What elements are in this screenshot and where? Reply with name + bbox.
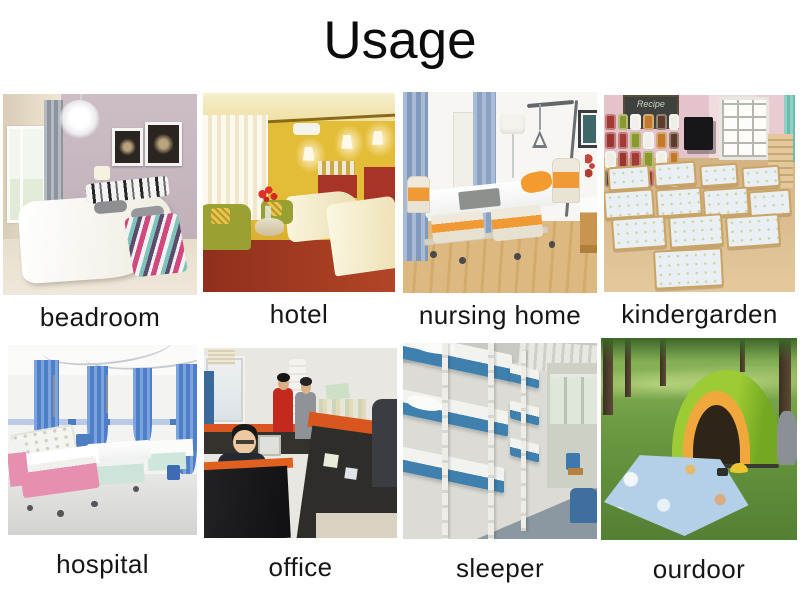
sofa-pillow (211, 208, 230, 224)
shelf-cube (643, 132, 654, 149)
usage-collage: Usage beadroom (0, 0, 800, 600)
seat-cushion (570, 488, 597, 523)
vase (265, 206, 271, 220)
usage-item-kindergarten: Recipe (604, 95, 795, 330)
caption-hotel: hotel (203, 299, 395, 330)
floor-lamp (500, 114, 525, 134)
usage-item-nursing-home: nursing home (403, 92, 597, 331)
outdoor-photo (601, 338, 797, 540)
monitor-back (204, 465, 291, 538)
page-title: Usage (0, 12, 800, 70)
shelf-cube (618, 114, 629, 131)
caption-hospital: hospital (8, 549, 197, 580)
twin-bed (325, 196, 395, 277)
person-dark (372, 399, 397, 486)
toddler-bed (655, 186, 703, 217)
shelf-cube (618, 132, 629, 149)
ladder (442, 343, 448, 539)
usage-item-bedroom: beadroom (3, 94, 197, 333)
bolster-pillow (94, 199, 128, 214)
bananas (730, 463, 748, 473)
caster-wheel (514, 253, 521, 260)
shelf-cube (605, 132, 616, 149)
person-hair (300, 377, 312, 386)
caption-office: office (204, 552, 397, 583)
caption-outdoor: ourdoor (601, 554, 797, 585)
shelf-cube (630, 132, 641, 149)
hotel-photo (203, 93, 395, 292)
chandelier (59, 100, 100, 140)
toddler-bed (653, 161, 697, 188)
toddler-bed (611, 215, 667, 250)
headboard (552, 158, 579, 202)
privacy-curtain (133, 368, 152, 444)
usage-item-hospital: hospital (8, 345, 197, 580)
shelf-cube (630, 114, 641, 131)
usage-item-sleeper: sleeper (403, 343, 597, 584)
usage-item-hotel: hotel (203, 93, 395, 330)
ladder (521, 351, 525, 531)
caption-kindergarten: kindergarden (604, 299, 795, 330)
toddler-bed (607, 164, 651, 191)
bedroom-photo (3, 94, 197, 295)
flower-decal (585, 154, 595, 178)
hospital-photo (8, 345, 197, 535)
shelf-cube (643, 114, 654, 131)
toddler-bed (653, 247, 724, 290)
table-lamp (94, 166, 110, 180)
window-blind (208, 348, 235, 365)
glasses (236, 440, 254, 444)
ladder (488, 343, 494, 539)
caster-wheel (91, 501, 97, 507)
usage-item-office: office (204, 348, 397, 583)
toddler-bed (748, 188, 792, 217)
picture-frame (578, 110, 597, 148)
hospital-bed-panel (92, 457, 145, 485)
shelf-cube (605, 151, 616, 168)
shelf-cube (656, 132, 667, 149)
nursing-home-photo (403, 92, 597, 293)
toddler-bed (702, 186, 750, 217)
blackboard-text: Recipe (625, 99, 677, 109)
caption-bedroom: beadroom (3, 302, 197, 333)
toddler-bed (604, 188, 655, 219)
monitor (258, 435, 281, 456)
striped-blanket (124, 212, 189, 277)
caption-sleeper: sleeper (403, 553, 597, 584)
document-box (325, 383, 350, 401)
camping-gear (777, 411, 797, 466)
toddler-bed (699, 163, 739, 187)
blue-stool (167, 465, 180, 480)
toddler-bed (725, 213, 781, 248)
window-mullion (20, 126, 23, 216)
usage-item-outdoor: ourdoor (601, 338, 797, 585)
sleeper-photo (403, 343, 597, 539)
red-flowers (255, 185, 280, 209)
person-hair (277, 373, 290, 383)
piano (684, 117, 713, 150)
tile-floor (316, 513, 397, 538)
picture-frame (145, 122, 182, 166)
footboard (407, 176, 430, 212)
shelf-cube (605, 114, 616, 131)
office-photo (204, 348, 397, 538)
sticky-note (323, 454, 338, 469)
bedside-cabinet (580, 197, 597, 253)
picture-frame (112, 128, 143, 166)
window (719, 97, 769, 160)
kindergarten-photo: Recipe (604, 95, 795, 292)
toddler-bed (668, 213, 724, 248)
corridor-window (550, 374, 597, 424)
shelf-cube (669, 114, 680, 131)
toddler-bed (741, 165, 781, 189)
side-table (568, 468, 584, 475)
caster-wheel (57, 510, 63, 516)
sticky-note (344, 467, 357, 480)
trapeze-arm (527, 100, 574, 108)
shelf-cube (656, 114, 667, 131)
shelf-cube (669, 132, 680, 149)
person-red-jacket (273, 388, 292, 432)
small-gear (717, 468, 729, 476)
glass-table (255, 218, 284, 236)
side-rail (431, 210, 486, 243)
tree-canopy-shadow (601, 338, 797, 362)
person-blue (204, 371, 214, 424)
iv-pole (106, 375, 108, 413)
lamp-pole (512, 134, 514, 178)
trapeze-strap (539, 104, 541, 130)
iv-pole (53, 375, 55, 417)
caption-nursing-home: nursing home (403, 300, 597, 331)
air-conditioner (293, 123, 320, 135)
side-rail (491, 204, 545, 241)
